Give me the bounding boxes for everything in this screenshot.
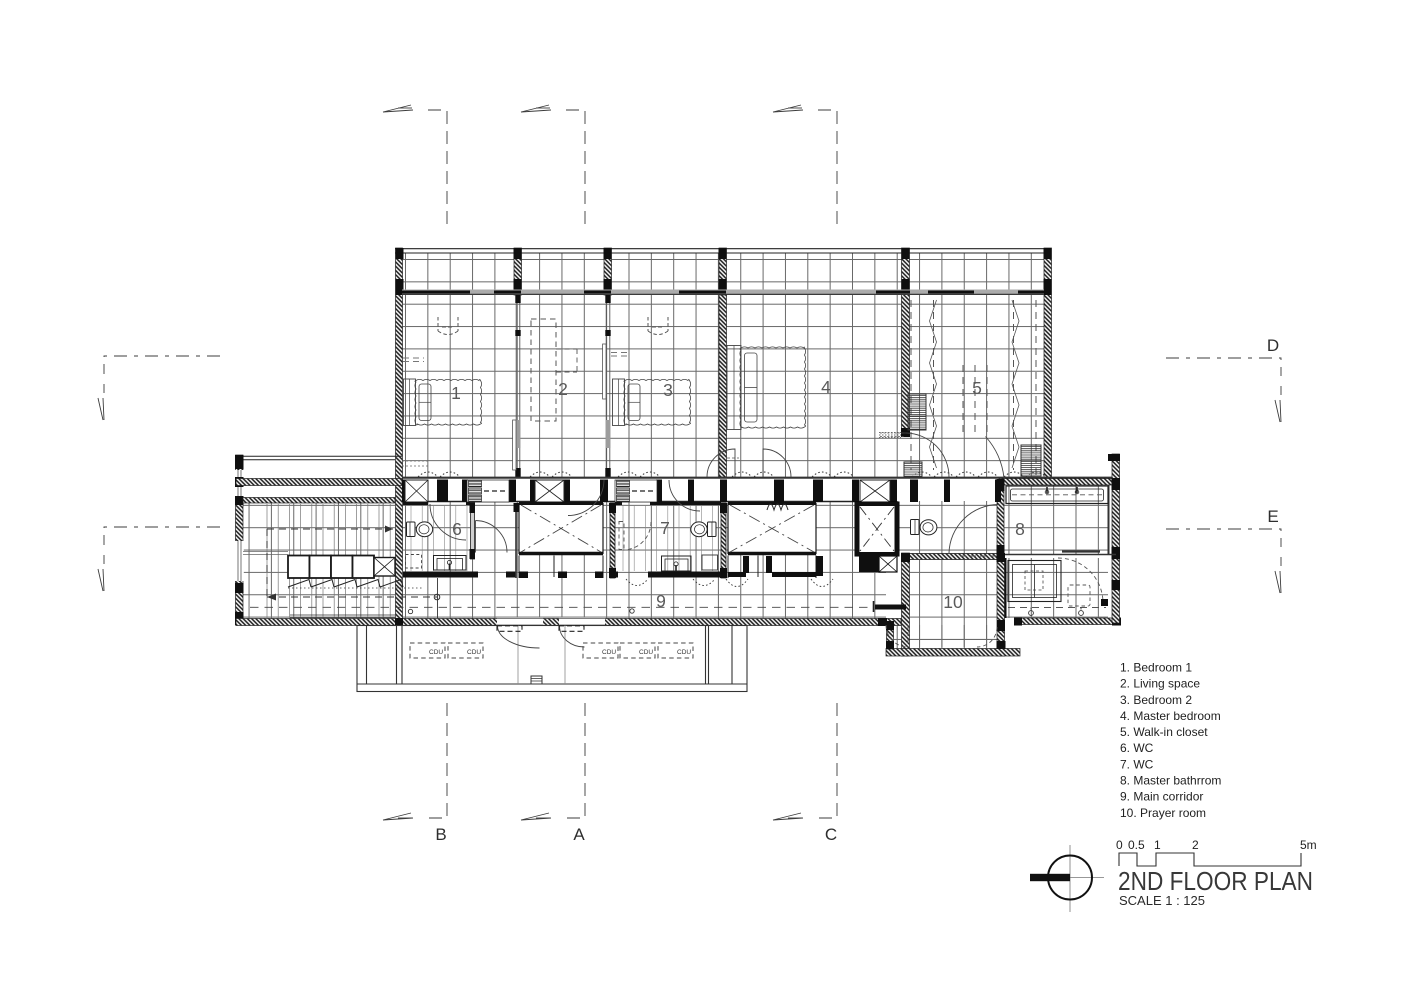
svg-text:E: E — [1267, 507, 1278, 526]
svg-text:10: 10 — [943, 592, 963, 612]
svg-text:7. WC: 7. WC — [1120, 757, 1154, 771]
svg-text:A: A — [573, 825, 585, 844]
svg-text:SCALE 1 : 125: SCALE 1 : 125 — [1119, 893, 1205, 908]
svg-text:10. Prayer room: 10. Prayer room — [1120, 806, 1206, 820]
svg-text:CDU: CDU — [602, 649, 616, 656]
svg-text:CDU: CDU — [467, 649, 481, 656]
svg-text:7: 7 — [660, 518, 670, 538]
svg-text:B: B — [435, 825, 446, 844]
svg-text:0: 0 — [1116, 838, 1123, 852]
svg-text:8: 8 — [1015, 519, 1025, 539]
svg-text:2: 2 — [1192, 838, 1199, 852]
svg-text:CDU: CDU — [429, 649, 443, 656]
svg-text:3. Bedroom 2: 3. Bedroom 2 — [1120, 693, 1192, 707]
svg-text:D: D — [1267, 336, 1279, 355]
svg-text:1: 1 — [1154, 838, 1161, 852]
svg-text:0.5: 0.5 — [1128, 838, 1145, 852]
svg-text:2: 2 — [558, 379, 568, 399]
svg-text:1. Bedroom 1: 1. Bedroom 1 — [1120, 661, 1192, 675]
svg-text:CDU: CDU — [639, 649, 653, 656]
svg-text:9: 9 — [656, 591, 666, 611]
svg-text:4: 4 — [821, 377, 831, 397]
svg-text:1: 1 — [451, 383, 461, 403]
svg-text:8. Master bathrrom: 8. Master bathrrom — [1120, 774, 1221, 788]
svg-text:2. Living space: 2. Living space — [1120, 677, 1200, 691]
svg-text:CDU: CDU — [677, 649, 691, 656]
svg-text:C: C — [825, 825, 837, 844]
svg-text:5. Walk-in closet: 5. Walk-in closet — [1120, 725, 1208, 739]
svg-text:6. WC: 6. WC — [1120, 741, 1154, 755]
svg-text:6: 6 — [452, 519, 462, 539]
svg-text:4. Master bedroom: 4. Master bedroom — [1120, 709, 1221, 723]
svg-text:5m: 5m — [1300, 838, 1317, 852]
svg-text:3: 3 — [663, 380, 673, 400]
svg-text:9. Main corridor: 9. Main corridor — [1120, 790, 1203, 804]
svg-text:2ND FLOOR PLAN: 2ND FLOOR PLAN — [1118, 866, 1313, 896]
svg-text:5: 5 — [972, 378, 982, 398]
